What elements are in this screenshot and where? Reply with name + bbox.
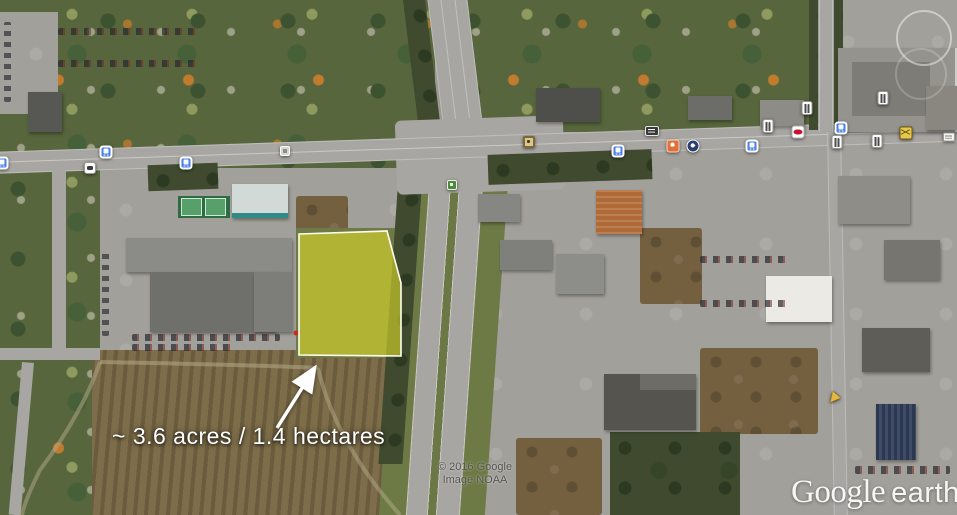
transit-icon[interactable]	[835, 122, 848, 135]
restaurant-icon[interactable]	[802, 101, 813, 115]
fastfood-orange-icon[interactable]	[667, 140, 680, 153]
transit-icon[interactable]	[746, 140, 759, 153]
earth-logo-text: earth	[891, 477, 957, 510]
donut-red-icon[interactable]	[792, 126, 805, 139]
map-canvas[interactable]: ~ 3.6 acres / 1.4 hectares © 2016 Google…	[0, 0, 957, 515]
circle-navy-icon[interactable]	[687, 140, 700, 153]
restaurant-icon[interactable]	[872, 134, 883, 148]
marker-yellow-arrow-icon[interactable]	[827, 393, 840, 406]
copyright-text: © 2016 Google	[438, 461, 512, 474]
google-logo-text: Google	[791, 474, 885, 511]
sign-white-icon[interactable]	[943, 133, 955, 142]
post-yellow-icon[interactable]	[900, 127, 913, 140]
transit-icon[interactable]	[612, 145, 625, 158]
transit-icon[interactable]	[0, 157, 9, 170]
transit-icon[interactable]	[180, 157, 193, 170]
marker-green-icon[interactable]	[447, 180, 457, 190]
restaurant-icon[interactable]	[763, 119, 774, 133]
restaurant-icon[interactable]	[878, 91, 889, 105]
map-attribution: © 2016 Google Image NOAA	[438, 461, 512, 487]
sign-dark-icon[interactable]	[645, 126, 659, 136]
poi-yellow-icon[interactable]	[523, 136, 535, 148]
google-earth-watermark: Google earth	[791, 474, 957, 511]
restaurant-icon[interactable]	[832, 135, 843, 149]
vehicle-icon[interactable]	[84, 162, 96, 174]
transit-icon[interactable]	[100, 146, 113, 159]
imagery-credit-text: Image NOAA	[438, 474, 512, 487]
shelter-icon[interactable]	[280, 146, 290, 156]
area-annotation: ~ 3.6 acres / 1.4 hectares	[112, 423, 385, 450]
